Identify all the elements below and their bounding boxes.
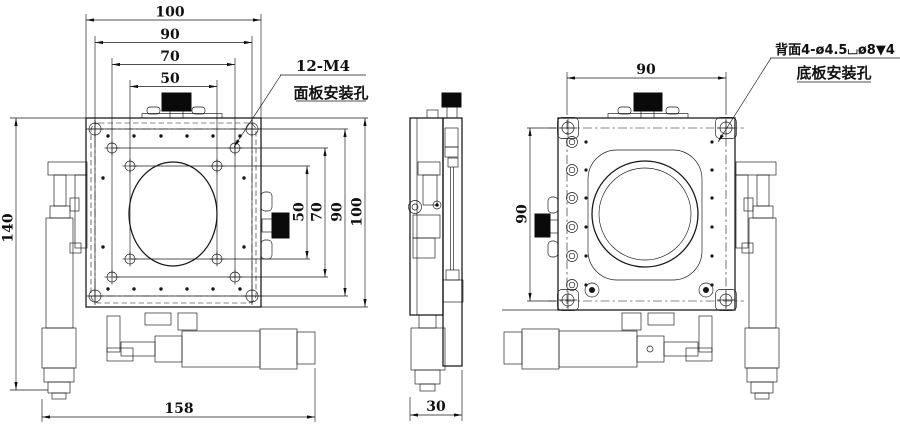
front-small-holes (101, 134, 245, 290)
dim-text: 90 (636, 62, 656, 78)
micrometer-barrel (46, 218, 73, 328)
side-view (409, 93, 464, 391)
callout-label-text: 底板安装孔 (796, 64, 871, 82)
micrometer-thimble (260, 329, 297, 369)
mounting-hole (105, 141, 120, 156)
side-body-right-plate (443, 118, 462, 366)
dimension-front-right-70: 70 (310, 148, 326, 277)
counterbore-hole (717, 119, 735, 137)
dim-text: 50 (292, 202, 308, 222)
mounting-hole (228, 270, 243, 285)
dimension-front-top-50: 50 (130, 71, 217, 87)
dim-text: 158 (164, 401, 193, 417)
back-extension-lines (527, 72, 726, 301)
counterbore-hole (559, 291, 577, 309)
knob-bump (261, 192, 272, 211)
mounting-hole (210, 252, 225, 267)
dim-text: 50 (160, 71, 180, 87)
dim-text: 90 (330, 202, 346, 222)
socket-screw (567, 222, 578, 233)
mounting-hole (228, 141, 243, 156)
back-plate (558, 118, 735, 310)
mounting-hole (123, 252, 138, 267)
knob-bump (192, 107, 205, 114)
back-top-knob (608, 93, 688, 118)
dimension-back-top-90: 90 (567, 62, 726, 78)
mounting-hole (105, 270, 120, 285)
lock-knob (162, 93, 191, 111)
front-centerlines (89, 121, 258, 304)
side-top-knob (427, 93, 461, 118)
dimension-front-left-140: 140 (1, 118, 17, 390)
engineering-drawing: 100 90 70 50 50 70 90 100 140 158 30 (0, 0, 900, 428)
leader-line (234, 75, 281, 147)
socket-screw (567, 251, 578, 262)
callout-spec-text: 12-M4 (296, 57, 350, 75)
dimension-front-top-70: 70 (112, 49, 235, 65)
hidden-plate-outline (91, 123, 256, 303)
micrometer-thimble (42, 328, 76, 368)
dimension-back-left-90: 90 (515, 128, 531, 301)
dim-text: 140 (1, 213, 17, 242)
front-side-knob (261, 192, 289, 259)
callout-panel-mounting-holes: 12-M4 面板安装孔 (234, 57, 369, 147)
callout-label-text: 面板安装孔 (293, 84, 368, 102)
dimension-front-bottom-158: 158 (42, 401, 315, 417)
socket-screw-large (585, 283, 599, 297)
back-right-micrometer (736, 162, 779, 399)
knob-bump (618, 107, 631, 114)
dim-text: 100 (155, 5, 184, 21)
knob-bump (147, 107, 160, 114)
knob-bump (548, 197, 558, 213)
dim-text: 70 (160, 49, 180, 65)
dimension-front-right-50: 50 (292, 166, 308, 259)
dim-text: 90 (160, 27, 180, 43)
socket-screw (567, 165, 578, 176)
micrometer-barrel (749, 218, 776, 328)
knob-bump (261, 240, 272, 259)
dimension-front-right-100: 100 (350, 118, 366, 307)
micrometer-thimble (411, 328, 445, 370)
back-view (502, 72, 779, 399)
socket-screw (567, 280, 578, 291)
callout-base-mounting-holes: 背面4-ø4.5⌴ø8▼4 底板安装孔 (718, 42, 900, 142)
dimension-front-top-90: 90 (95, 27, 252, 43)
lock-knob (634, 93, 662, 111)
front-top-knob (142, 93, 222, 118)
counterbore-hole (717, 291, 735, 309)
front-left-micrometer (42, 162, 87, 399)
knob-bump (548, 241, 558, 257)
mounting-hole (243, 287, 261, 305)
dimension-front-right-90: 90 (330, 129, 346, 296)
micrometer-barrel (182, 331, 260, 367)
lock-knob (535, 214, 550, 237)
front-bottom-micrometer (107, 313, 315, 369)
back-bottom-micrometer (504, 313, 712, 369)
dimension-front-top-100: 100 (86, 5, 261, 21)
micrometer-thimble (522, 329, 559, 369)
back-aperture (588, 150, 702, 280)
socket-screw (567, 137, 578, 148)
dim-text: 90 (515, 204, 531, 224)
front-center-aperture (129, 162, 217, 266)
lock-knob (442, 93, 461, 107)
side-bottom-micrometer (411, 315, 445, 391)
mounting-hole (210, 159, 225, 174)
mounting-hole (86, 287, 104, 305)
dim-text: 30 (426, 399, 446, 415)
dim-text: 70 (310, 202, 326, 222)
micrometer-thimble (745, 328, 779, 368)
side-body-left-plate (410, 118, 443, 315)
back-corner-counterbores (558, 118, 737, 311)
dimension-side-bottom-30: 30 (410, 370, 462, 421)
socket-screw-large (699, 283, 713, 297)
lock-knob (272, 213, 289, 238)
callout-spec-text: 背面4-ø4.5⌴ø8▼4 (775, 42, 895, 58)
socket-screw (567, 193, 578, 204)
knob-bump (666, 107, 679, 114)
xy-stage-three-view-drawing: 100 90 70 50 50 70 90 100 140 158 30 (0, 0, 900, 428)
mounting-hole (123, 159, 138, 174)
micrometer-barrel (559, 331, 637, 367)
back-side-knob (535, 197, 558, 257)
dim-text: 100 (350, 197, 366, 226)
counterbore-hole (559, 119, 577, 137)
